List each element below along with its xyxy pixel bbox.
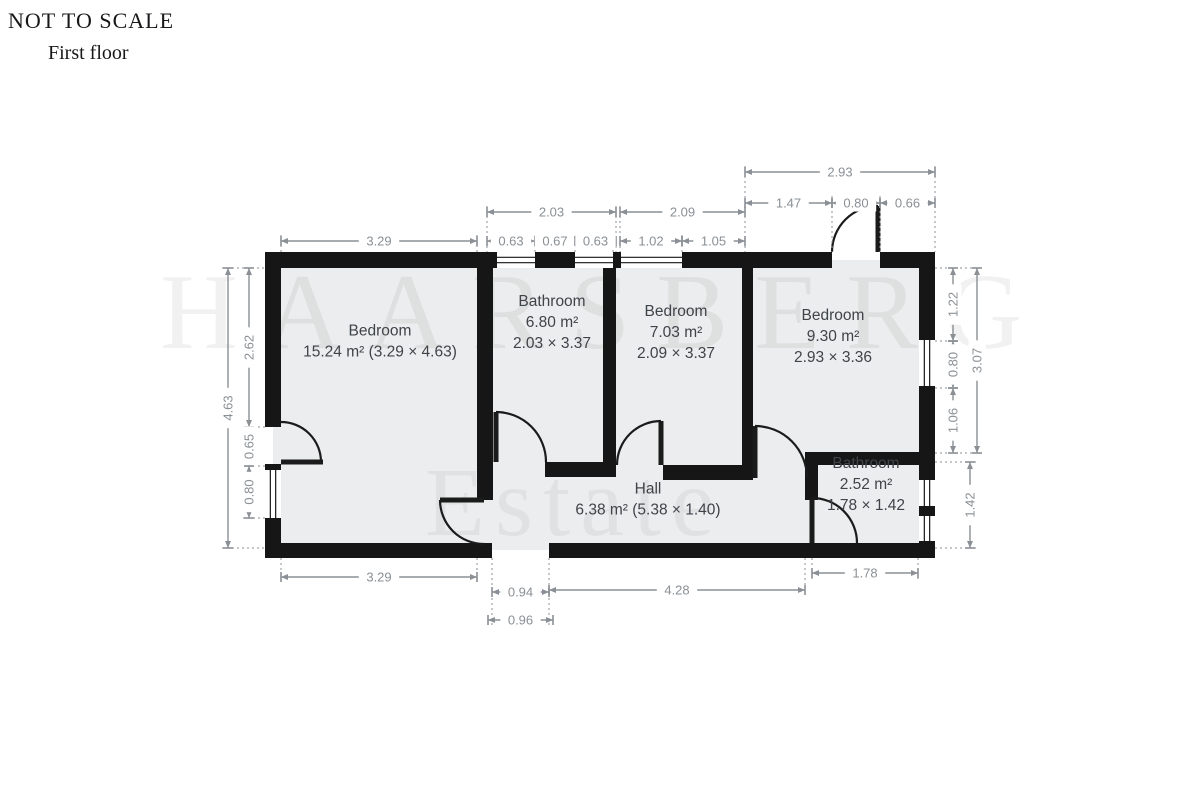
room-label-bedroom-3-line3: 2.93 × 3.36 [794,349,872,366]
dimension-3.07: 3.07 [970,348,985,373]
window-frame-cap [682,252,684,268]
room-label-bedroom-1-line2: 15.24 m² (3.29 × 4.63) [303,344,457,361]
wall [265,543,492,558]
window-frame-cap [265,518,281,520]
dim-arrow [911,570,918,576]
window-frame-cap [919,386,935,388]
balcony-door-top-swing-arc [832,206,878,252]
wall [265,518,281,558]
dimension-0.63: 0.63 [583,234,608,249]
dim-arrow [738,238,745,244]
floor-plan-drawing: HAARSBERGEstateBedroom15.24 m² (3.29 × 4… [0,0,1200,810]
window-frame-cap [535,252,537,268]
room-label-hall-line1: Hall [635,481,662,498]
wall [742,252,753,480]
window-frame-cap [619,252,621,268]
window [919,516,935,541]
dim-arrow [609,209,616,215]
wall [265,252,281,427]
wall [603,252,616,463]
dim-arrow [549,587,556,593]
room-label-bedroom-2-line2: 7.03 m² [650,324,703,341]
window-frame-cap [919,514,935,516]
wall [535,252,575,268]
dim-arrow [745,169,752,175]
dimension-2.09: 2.09 [670,205,695,220]
dimension-4.28: 4.28 [664,583,689,598]
dimension-2.93: 2.93 [827,165,852,180]
dimension-0.66: 0.66 [895,196,920,211]
dimension-0.94: 0.94 [508,585,533,600]
dimension-1.42: 1.42 [963,492,978,517]
dim-arrow [620,209,627,215]
dimension-1.22: 1.22 [946,292,961,317]
dim-arrow [488,617,495,623]
dim-arrow [812,570,819,576]
dim-arrow [225,541,231,548]
dimension-0.67: 0.67 [542,234,567,249]
dim-arrow [928,169,935,175]
dim-arrow [825,200,832,206]
window-frame-cap [495,252,497,268]
dim-arrow [620,238,627,244]
room-label-bedroom-1-line1: Bedroom [349,323,412,340]
dimension-3.29: 3.29 [366,234,391,249]
wall [919,541,935,558]
dim-arrow [682,238,689,244]
window [575,252,613,268]
wall [919,386,935,480]
dimension-1.05: 1.05 [701,234,726,249]
window-frame-cap [919,541,935,543]
room-label-bathroom-1-line3: 2.03 × 3.37 [513,335,591,352]
dimension-3.29: 3.29 [366,570,391,585]
dim-arrow [974,446,980,453]
dim-arrow [542,589,549,595]
window [919,340,935,386]
dim-arrow [967,462,973,469]
window [621,252,682,268]
dimension-1.78: 1.78 [852,566,877,581]
floor-plan-page: NOT TO SCALE First floor HAARSBERGEstate… [0,0,1200,810]
dim-arrow [546,617,553,623]
room-label-bathroom-2-line3: 1.78 × 1.42 [827,497,905,514]
plan-header: NOT TO SCALE First floor [8,8,174,65]
wall [265,252,497,268]
dim-arrow [675,238,682,244]
dimension-0.80: 0.80 [946,352,961,377]
dimension-0.96: 0.96 [508,613,533,628]
window-frame-cap [265,468,281,470]
window-frame-cap [919,506,935,508]
floor-title: First floor [48,42,174,65]
window-frame-cap [919,478,935,480]
dimension-0.80: 0.80 [242,479,257,504]
dim-arrow [798,587,805,593]
dim-arrow [470,574,477,580]
dim-arrow [281,574,288,580]
room-label-bedroom-2-line3: 2.09 × 3.37 [637,345,715,362]
dimension-0.80: 0.80 [843,196,868,211]
wall [549,543,935,558]
room-label-hall-line2: 6.38 m² (5.38 × 1.40) [575,502,720,519]
dimension-0.65: 0.65 [242,434,257,459]
not-to-scale-note: NOT TO SCALE [8,8,174,34]
window [497,252,535,268]
dim-arrow [281,238,288,244]
dim-arrow [738,209,745,215]
room-label-bathroom-2-line1: Bathroom [832,455,899,472]
room-label-bedroom-3-line2: 9.30 m² [807,328,860,345]
window [265,470,281,518]
room-label-bedroom-3-line1: Bedroom [802,307,865,324]
wall [663,465,742,480]
dim-arrow [470,238,477,244]
window-frame-cap [573,252,575,268]
room-label-bathroom-1-line1: Bathroom [518,293,585,310]
dim-arrow [246,420,252,427]
wall [477,252,493,500]
window-frame-cap [919,338,935,340]
dim-arrow [950,388,956,395]
wall [919,252,935,340]
dimension-2.62: 2.62 [242,335,257,360]
room-label-bathroom-1-line2: 6.80 m² [526,314,579,331]
dimension-2.03: 2.03 [539,205,564,220]
dim-arrow [487,209,494,215]
dimension-1.06: 1.06 [946,408,961,433]
dim-arrow [950,446,956,453]
dim-arrow [492,589,499,595]
window-frame-cap [613,252,615,268]
dimension-4.63: 4.63 [221,395,236,420]
room-label-bedroom-2-line1: Bedroom [645,303,708,320]
dimension-1.47: 1.47 [776,196,801,211]
dimension-1.02: 1.02 [638,234,663,249]
window [919,480,935,506]
dim-arrow [928,200,935,206]
wall [545,462,616,477]
dim-arrow [967,541,973,548]
dimension-0.63: 0.63 [498,234,523,249]
dim-arrow [880,200,887,206]
wall [682,252,832,268]
room-label-bathroom-2-line2: 2.52 m² [840,476,893,493]
dim-arrow [745,200,752,206]
